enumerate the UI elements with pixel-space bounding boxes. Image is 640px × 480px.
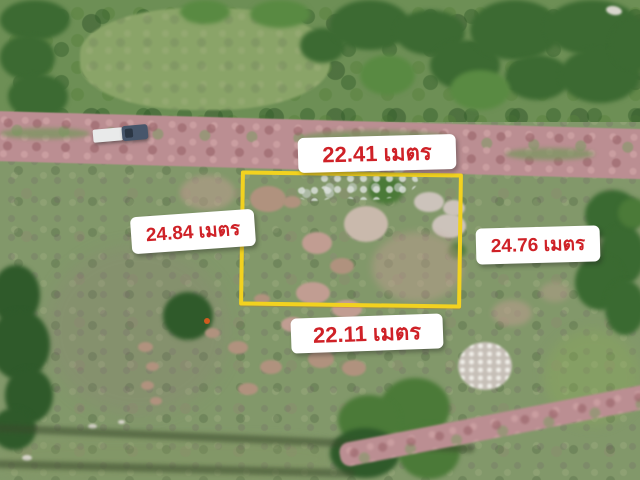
tree-canopy — [360, 55, 415, 95]
measurement-text-top: 22.41 เมตร — [322, 135, 432, 173]
truck-cab — [121, 124, 148, 141]
soil-patch — [228, 341, 248, 354]
measurement-text-left: 24.84 เมตร — [145, 213, 241, 250]
gravel-debris-patch — [458, 342, 512, 390]
measurement-label-top: 22.41 เมตร — [298, 134, 457, 173]
grass-on-road — [505, 148, 595, 160]
soil-patch — [492, 300, 532, 326]
tree-right — [618, 198, 640, 228]
soil-patch — [150, 397, 162, 405]
tree-canopy — [0, 0, 70, 40]
measurement-label-right: 24.76 เมตร — [476, 225, 601, 264]
tree-right — [605, 280, 640, 335]
measurement-text-right: 24.76 เมตร — [490, 229, 585, 261]
land-boundary-rectangle — [239, 170, 463, 308]
measurement-text-bottom: 22.11 เมตร — [312, 314, 421, 353]
soil-patch — [205, 328, 220, 338]
white-speck — [118, 420, 125, 424]
tree-canopy — [0, 35, 55, 80]
tree-canopy — [180, 0, 230, 24]
measurement-label-bottom: 22.11 เมตร — [290, 313, 443, 353]
soil-patch — [342, 360, 366, 376]
tree-canopy — [250, 0, 310, 28]
soil-patch — [180, 175, 235, 210]
soil-patch — [540, 282, 570, 302]
aerial-photo: 22.41 เมตร 24.84 เมตร 24.76 เมตร 22.11 เ… — [0, 0, 640, 480]
soil-patch — [238, 383, 258, 395]
tree-canopy — [450, 70, 510, 110]
truck-bed — [93, 127, 124, 143]
soil-patch — [141, 381, 154, 390]
soil-patch — [138, 342, 153, 352]
orange-marker-dot — [204, 318, 210, 324]
soil-patch — [260, 360, 282, 374]
grass-on-road — [0, 128, 90, 139]
soil-patch — [146, 362, 159, 371]
